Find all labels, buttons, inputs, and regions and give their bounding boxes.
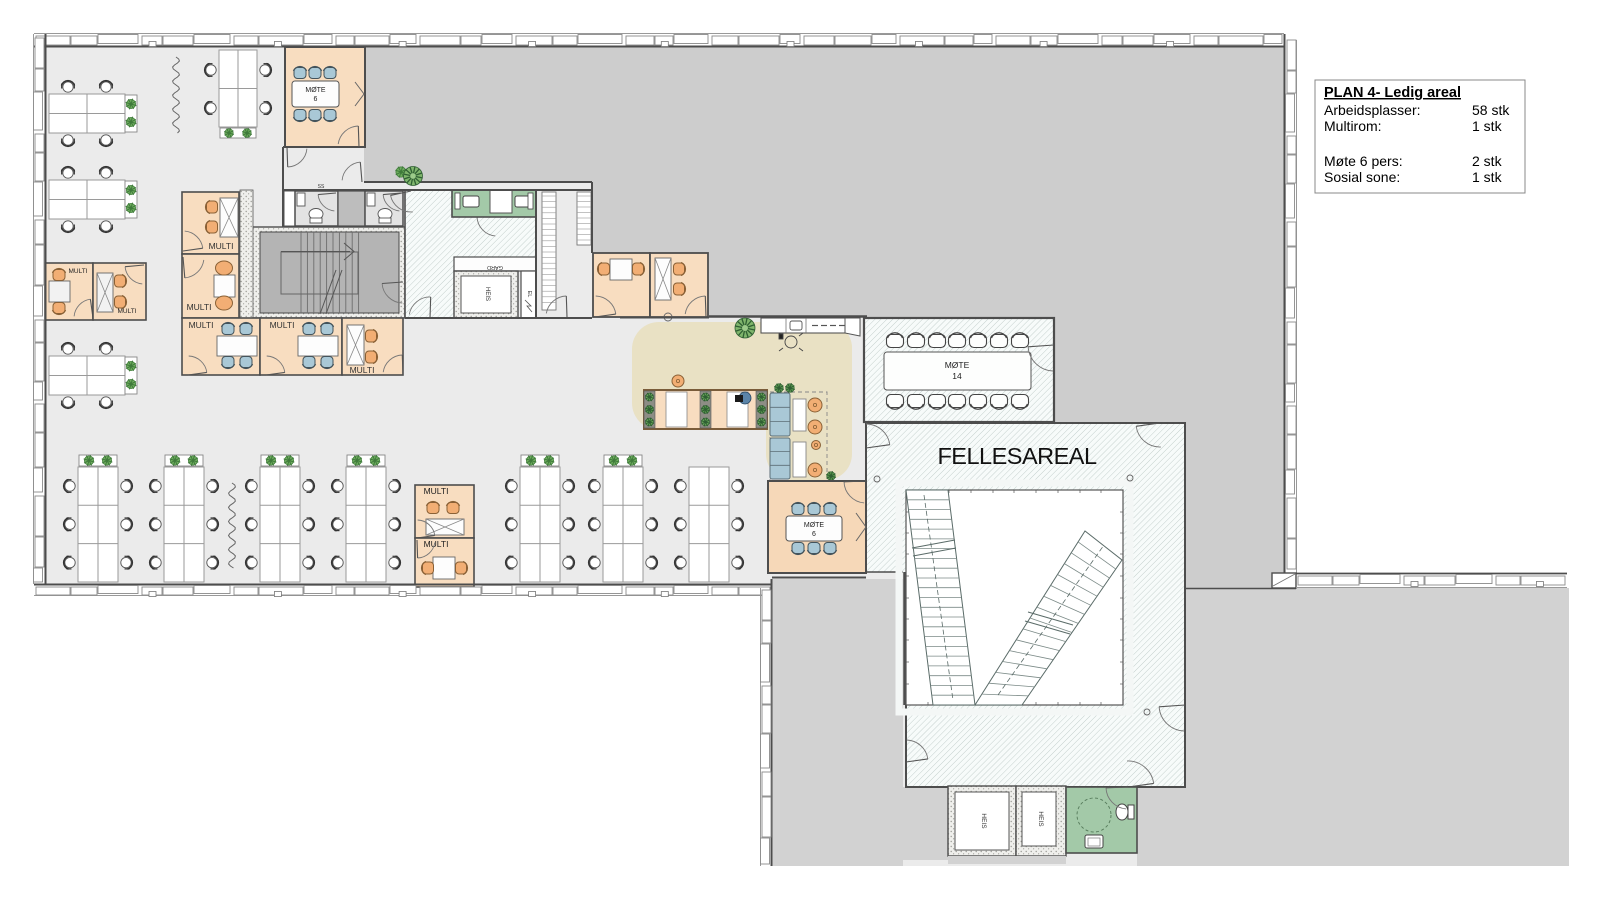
svg-text:6: 6: [812, 531, 816, 538]
svg-text:Møte 6 pers:: Møte 6 pers:: [1324, 153, 1403, 169]
svg-text:MØTE: MØTE: [804, 522, 825, 529]
svg-text:GARD: GARD: [487, 264, 503, 270]
svg-text:MØTE: MØTE: [945, 360, 970, 370]
svg-text:MULTI: MULTI: [189, 320, 214, 330]
svg-text:FELLESAREAL: FELLESAREAL: [937, 443, 1097, 469]
svg-text:MULTI: MULTI: [270, 320, 295, 330]
svg-text:MULTI: MULTI: [350, 365, 375, 375]
svg-text:Arbeidsplasser:: Arbeidsplasser:: [1324, 102, 1421, 118]
svg-text:MULTI: MULTI: [117, 308, 136, 315]
svg-text:MULTI: MULTI: [424, 486, 449, 496]
svg-text:EL: EL: [526, 291, 532, 298]
svg-text:1 stk: 1 stk: [1472, 118, 1503, 134]
svg-text:HEIS: HEIS: [1037, 811, 1044, 827]
svg-text:HEIS: HEIS: [980, 813, 987, 829]
svg-text:MULTI: MULTI: [187, 302, 212, 312]
svg-text:Multirom:: Multirom:: [1324, 118, 1382, 134]
svg-text:MULTI: MULTI: [424, 539, 449, 549]
svg-text:HEIS: HEIS: [484, 287, 490, 301]
svg-text:MULTI: MULTI: [209, 241, 234, 251]
svg-text:6: 6: [314, 96, 318, 103]
svg-text:2 stk: 2 stk: [1472, 153, 1503, 169]
svg-text:58 stk: 58 stk: [1472, 102, 1510, 118]
svg-text:1 stk: 1 stk: [1472, 169, 1503, 185]
svg-text:PLAN 4- Ledig areal: PLAN 4- Ledig areal: [1324, 85, 1461, 101]
svg-text:14: 14: [952, 371, 962, 381]
svg-text:Sosial sone:: Sosial sone:: [1324, 169, 1400, 185]
svg-text:MULTI: MULTI: [68, 268, 87, 275]
svg-text:MØTE: MØTE: [305, 87, 326, 94]
